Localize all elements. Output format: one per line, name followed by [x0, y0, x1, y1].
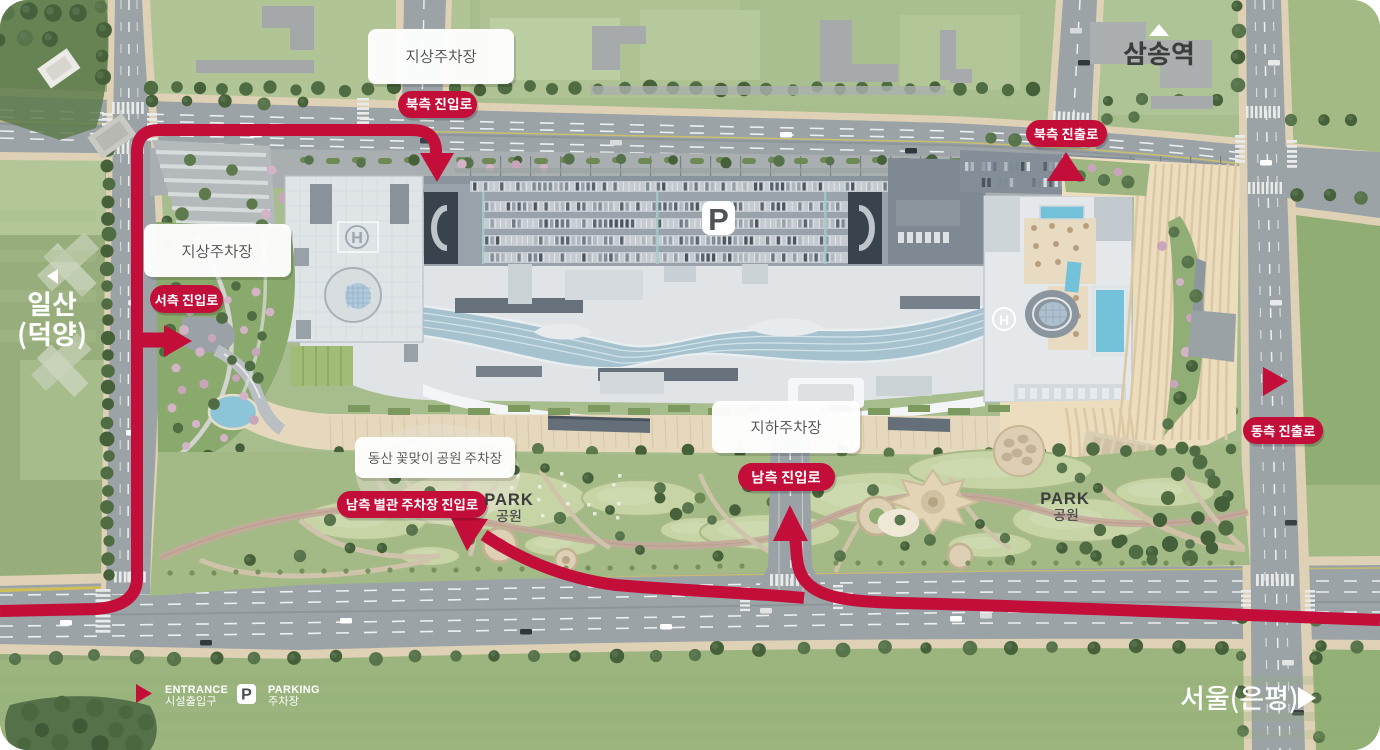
- svg-text:PARK: PARK: [1040, 490, 1090, 508]
- svg-text:H: H: [999, 312, 1009, 328]
- svg-text:ENTRANCE: ENTRANCE: [165, 684, 228, 696]
- svg-text:P: P: [241, 687, 252, 704]
- svg-text:PARK: PARK: [484, 491, 534, 509]
- svg-text:PARKING: PARKING: [268, 684, 320, 696]
- svg-text:H: H: [351, 230, 363, 247]
- svg-text:P: P: [708, 202, 729, 237]
